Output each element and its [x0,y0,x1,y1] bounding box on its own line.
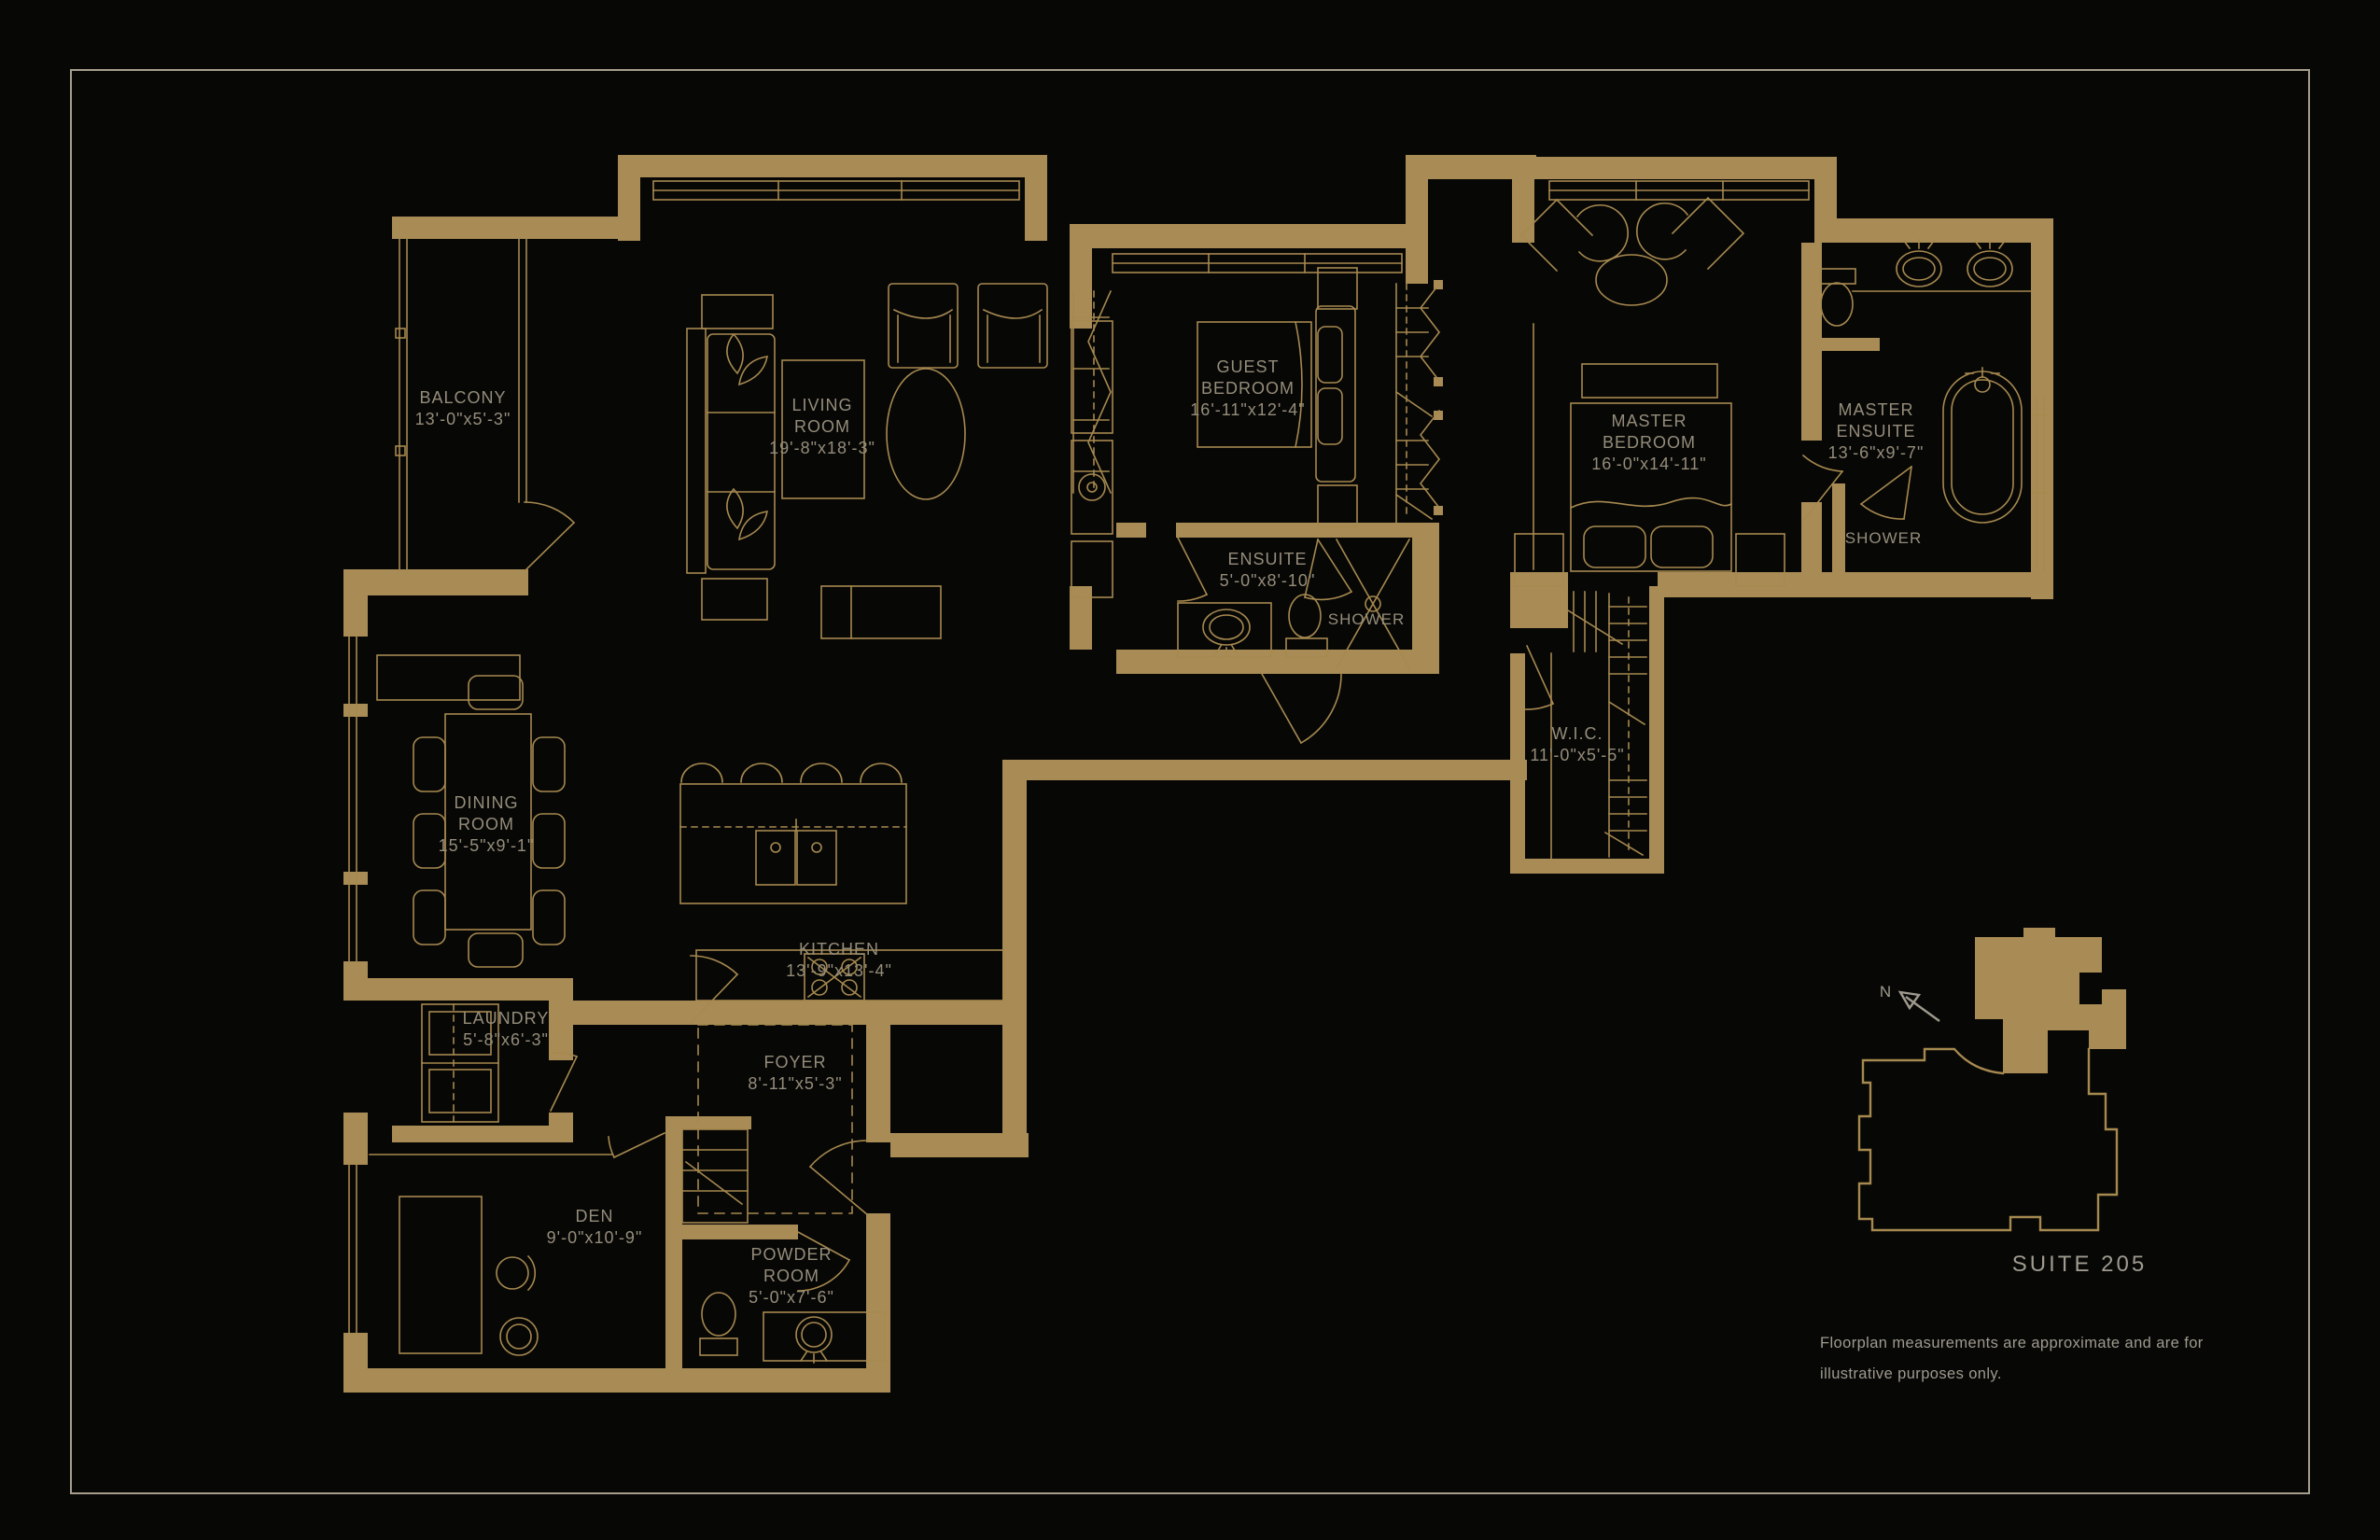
suite-entry-door [810,1141,868,1215]
keyplan: N SUITE 205 [1859,928,2147,1277]
dining-window [349,637,357,961]
dining-chair [469,933,523,967]
room-label-master-bedroom: MASTERBEDROOM16'-0"x14'-11" [1591,412,1706,473]
bar-stool [681,763,722,782]
desk-chair [497,1256,535,1290]
suite-title: SUITE 205 [2012,1252,2147,1277]
hall-closet-rods [1568,592,1622,651]
dining-chair [533,814,565,868]
dining-chair [413,890,445,945]
dining-chair [533,737,565,791]
bar-stool [801,763,842,782]
bar-stool [861,763,902,782]
master-ensuite-fixtures [1820,239,2031,523]
bathtub-icon [1943,368,2022,523]
media-wall [1071,321,1113,597]
sink-icon [1967,239,2012,287]
room-label-master-ensuite: MASTERENSUITE13'-6"x9'-7" [1828,400,1925,462]
kitchen-island [680,784,906,903]
plant-icon [727,334,767,385]
plant-icon [727,489,767,539]
balcony-door [525,502,574,571]
toilet-icon [1820,269,1855,326]
room-label-den: DEN9'-0"x10'-9" [547,1207,643,1247]
living-window [653,181,1019,200]
room-label-dining-room: DININGROOM15'-5"x9'-1" [439,793,535,855]
room-label-wic: W.I.C.11'-0"x5'-5" [1530,724,1624,764]
keyplan-suite-highlight [1975,928,2126,1073]
credenza [377,655,520,700]
rug [887,369,965,499]
lounge-chair [1637,198,1743,269]
dining-chair [413,737,445,791]
fixture-label-shower-master: SHOWER [1845,529,1923,547]
desk [399,1197,482,1353]
guest-window [1113,254,1402,273]
keyplan-building-outline [1859,1049,2117,1230]
lounge-chair [1521,200,1628,271]
fixture-label-shower-guest: SHOWER [1328,610,1406,628]
sink-icon [1897,239,1941,287]
bar-stool [741,763,782,782]
windows [349,181,2048,1333]
nightstand [1318,268,1357,309]
nightstand [1318,485,1357,526]
closet [1396,284,1439,523]
room-label-kitchen: KITCHEN13'-9"x13'-4" [786,940,892,980]
shower-icon [1305,539,1409,668]
balcony-glass-wall [519,239,526,502]
ottoman [821,586,941,638]
room-label-powder-room: POWDERROOM5'-0"x7'-6" [749,1245,834,1307]
den-door [609,1133,665,1157]
side-table [500,1318,538,1355]
guest-bedroom-door [1178,538,1207,601]
armchair [889,284,958,368]
toilet-icon [1286,595,1327,657]
side-table [702,295,773,329]
wic-door [1525,646,1553,709]
balcony-railing [396,239,407,569]
room-label-laundry: LAUNDRY5'-8"x6'-3" [463,1009,550,1049]
disclaimer-line-1: Floorplan measurements are approximate a… [1820,1335,2204,1351]
disclaimer-line-2: illustrative purposes only. [1820,1365,2002,1382]
side-table [702,579,767,620]
room-label-balcony: BALCONY13'-0"x5'-3" [415,388,511,428]
armchair [978,284,1047,368]
den-window [349,1165,357,1333]
shower-door [1861,467,1911,519]
room-label-ensuite: ENSUITE5'-0"x8'-10" [1220,550,1316,590]
bedroom-hall-door [1262,674,1341,743]
toilet-icon [700,1293,737,1355]
dining-chair [533,890,565,945]
room-label-living-room: LIVINGROOM19'-8"x18'-3" [769,396,875,457]
room-labels: BALCONY13'-0"x5'-3"LIVINGROOM19'-8"x18'-… [415,357,1925,1307]
sink-icon [1178,603,1271,657]
oval-table [1596,255,1667,305]
dining-chair [469,676,523,709]
master-bedroom-furniture [1515,198,1785,586]
north-arrow-icon: N [1880,983,1939,1021]
linen-closet [682,1129,748,1223]
north-label: N [1880,983,1891,1001]
room-label-foyer: FOYER8'-11"x5'-3" [748,1053,842,1093]
floorplan-page: N SUITE 205 Floorplan measurements are a… [0,0,2380,1540]
living-room-furniture [377,284,1113,700]
dresser [1582,364,1717,398]
master-window [1549,181,1809,200]
floorplan-canvas: N SUITE 205 Floorplan measurements are a… [0,0,2380,1540]
room-label-guest-bedroom: GUESTBEDROOM16'-11"x12'-4" [1190,357,1305,419]
laundry-door [551,1053,577,1111]
